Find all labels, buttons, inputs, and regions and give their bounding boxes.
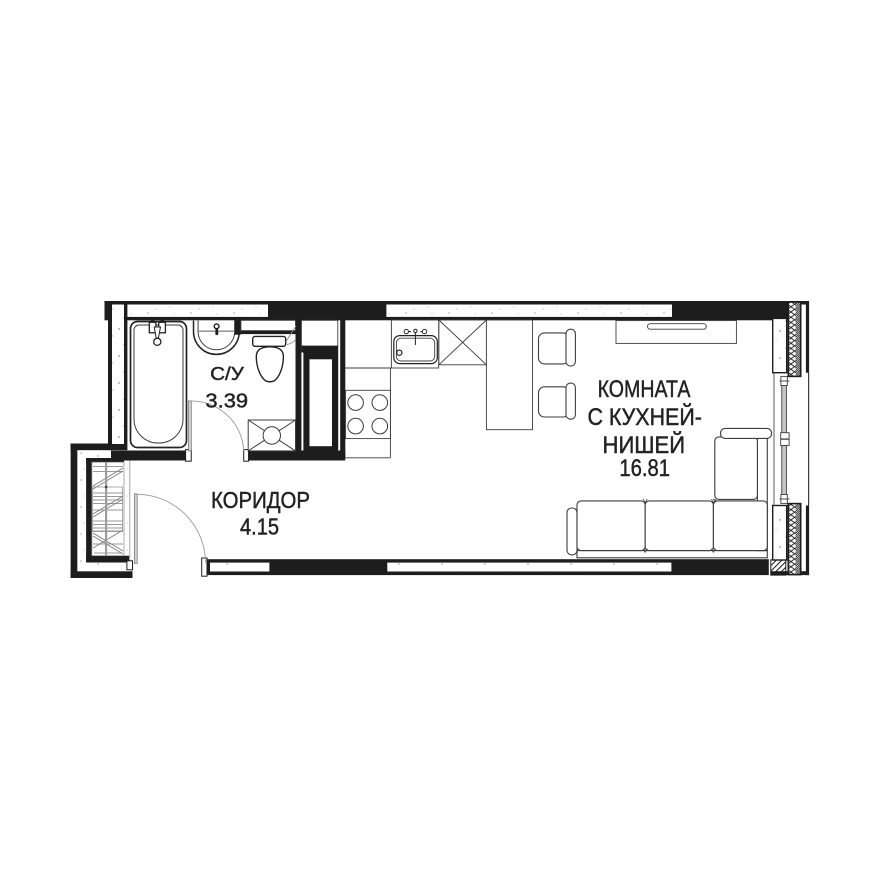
svg-text:КОМНАТА: КОМНАТА	[598, 376, 691, 403]
svg-text:3.39: 3.39	[205, 390, 248, 412]
svg-text:С КУХНЕЙ-: С КУХНЕЙ-	[587, 403, 702, 431]
svg-text:4.15: 4.15	[240, 514, 279, 540]
svg-text:КОРИДОР: КОРИДОР	[211, 487, 310, 513]
svg-text:16.81: 16.81	[619, 455, 670, 482]
svg-text:С/У: С/У	[210, 364, 244, 384]
